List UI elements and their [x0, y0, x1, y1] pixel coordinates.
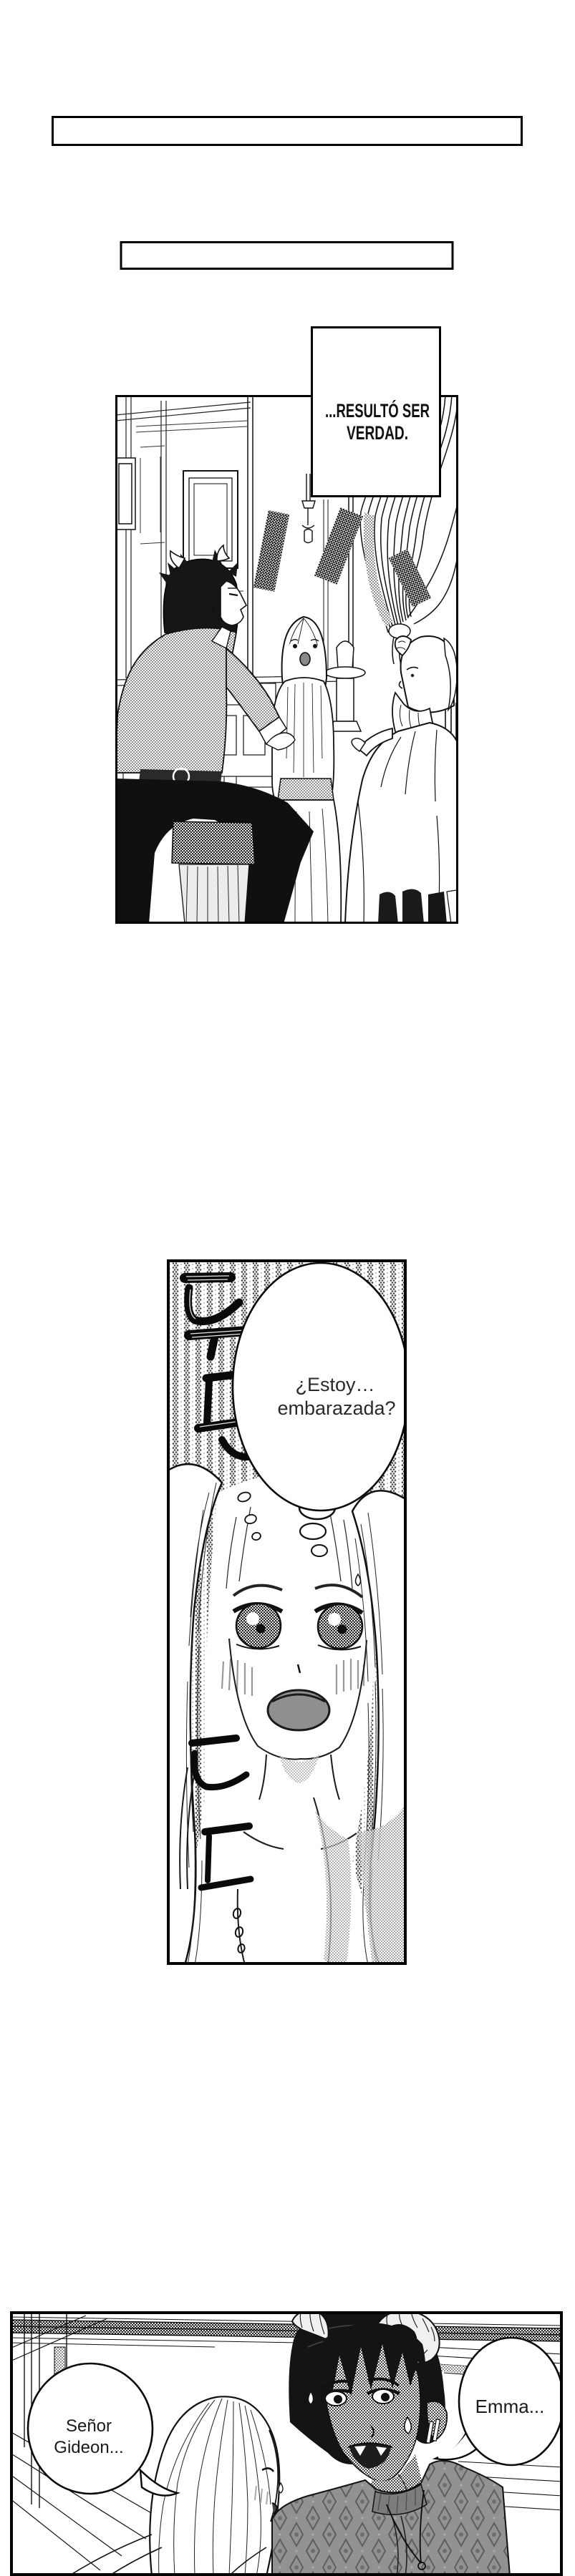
svg-text:embarazada?: embarazada? — [277, 1397, 395, 1419]
svg-text:Señor: Señor — [66, 2416, 112, 2436]
svg-text:Gideon...: Gideon... — [54, 2438, 123, 2457]
svg-text:Emma...: Emma... — [475, 2396, 545, 2417]
svg-text:¿Estoy…: ¿Estoy… — [295, 1374, 375, 1395]
svg-text:...RESULTÓ SER: ...RESULTÓ SER — [325, 399, 430, 421]
svg-text:VERDAD.: VERDAD. — [347, 422, 408, 444]
